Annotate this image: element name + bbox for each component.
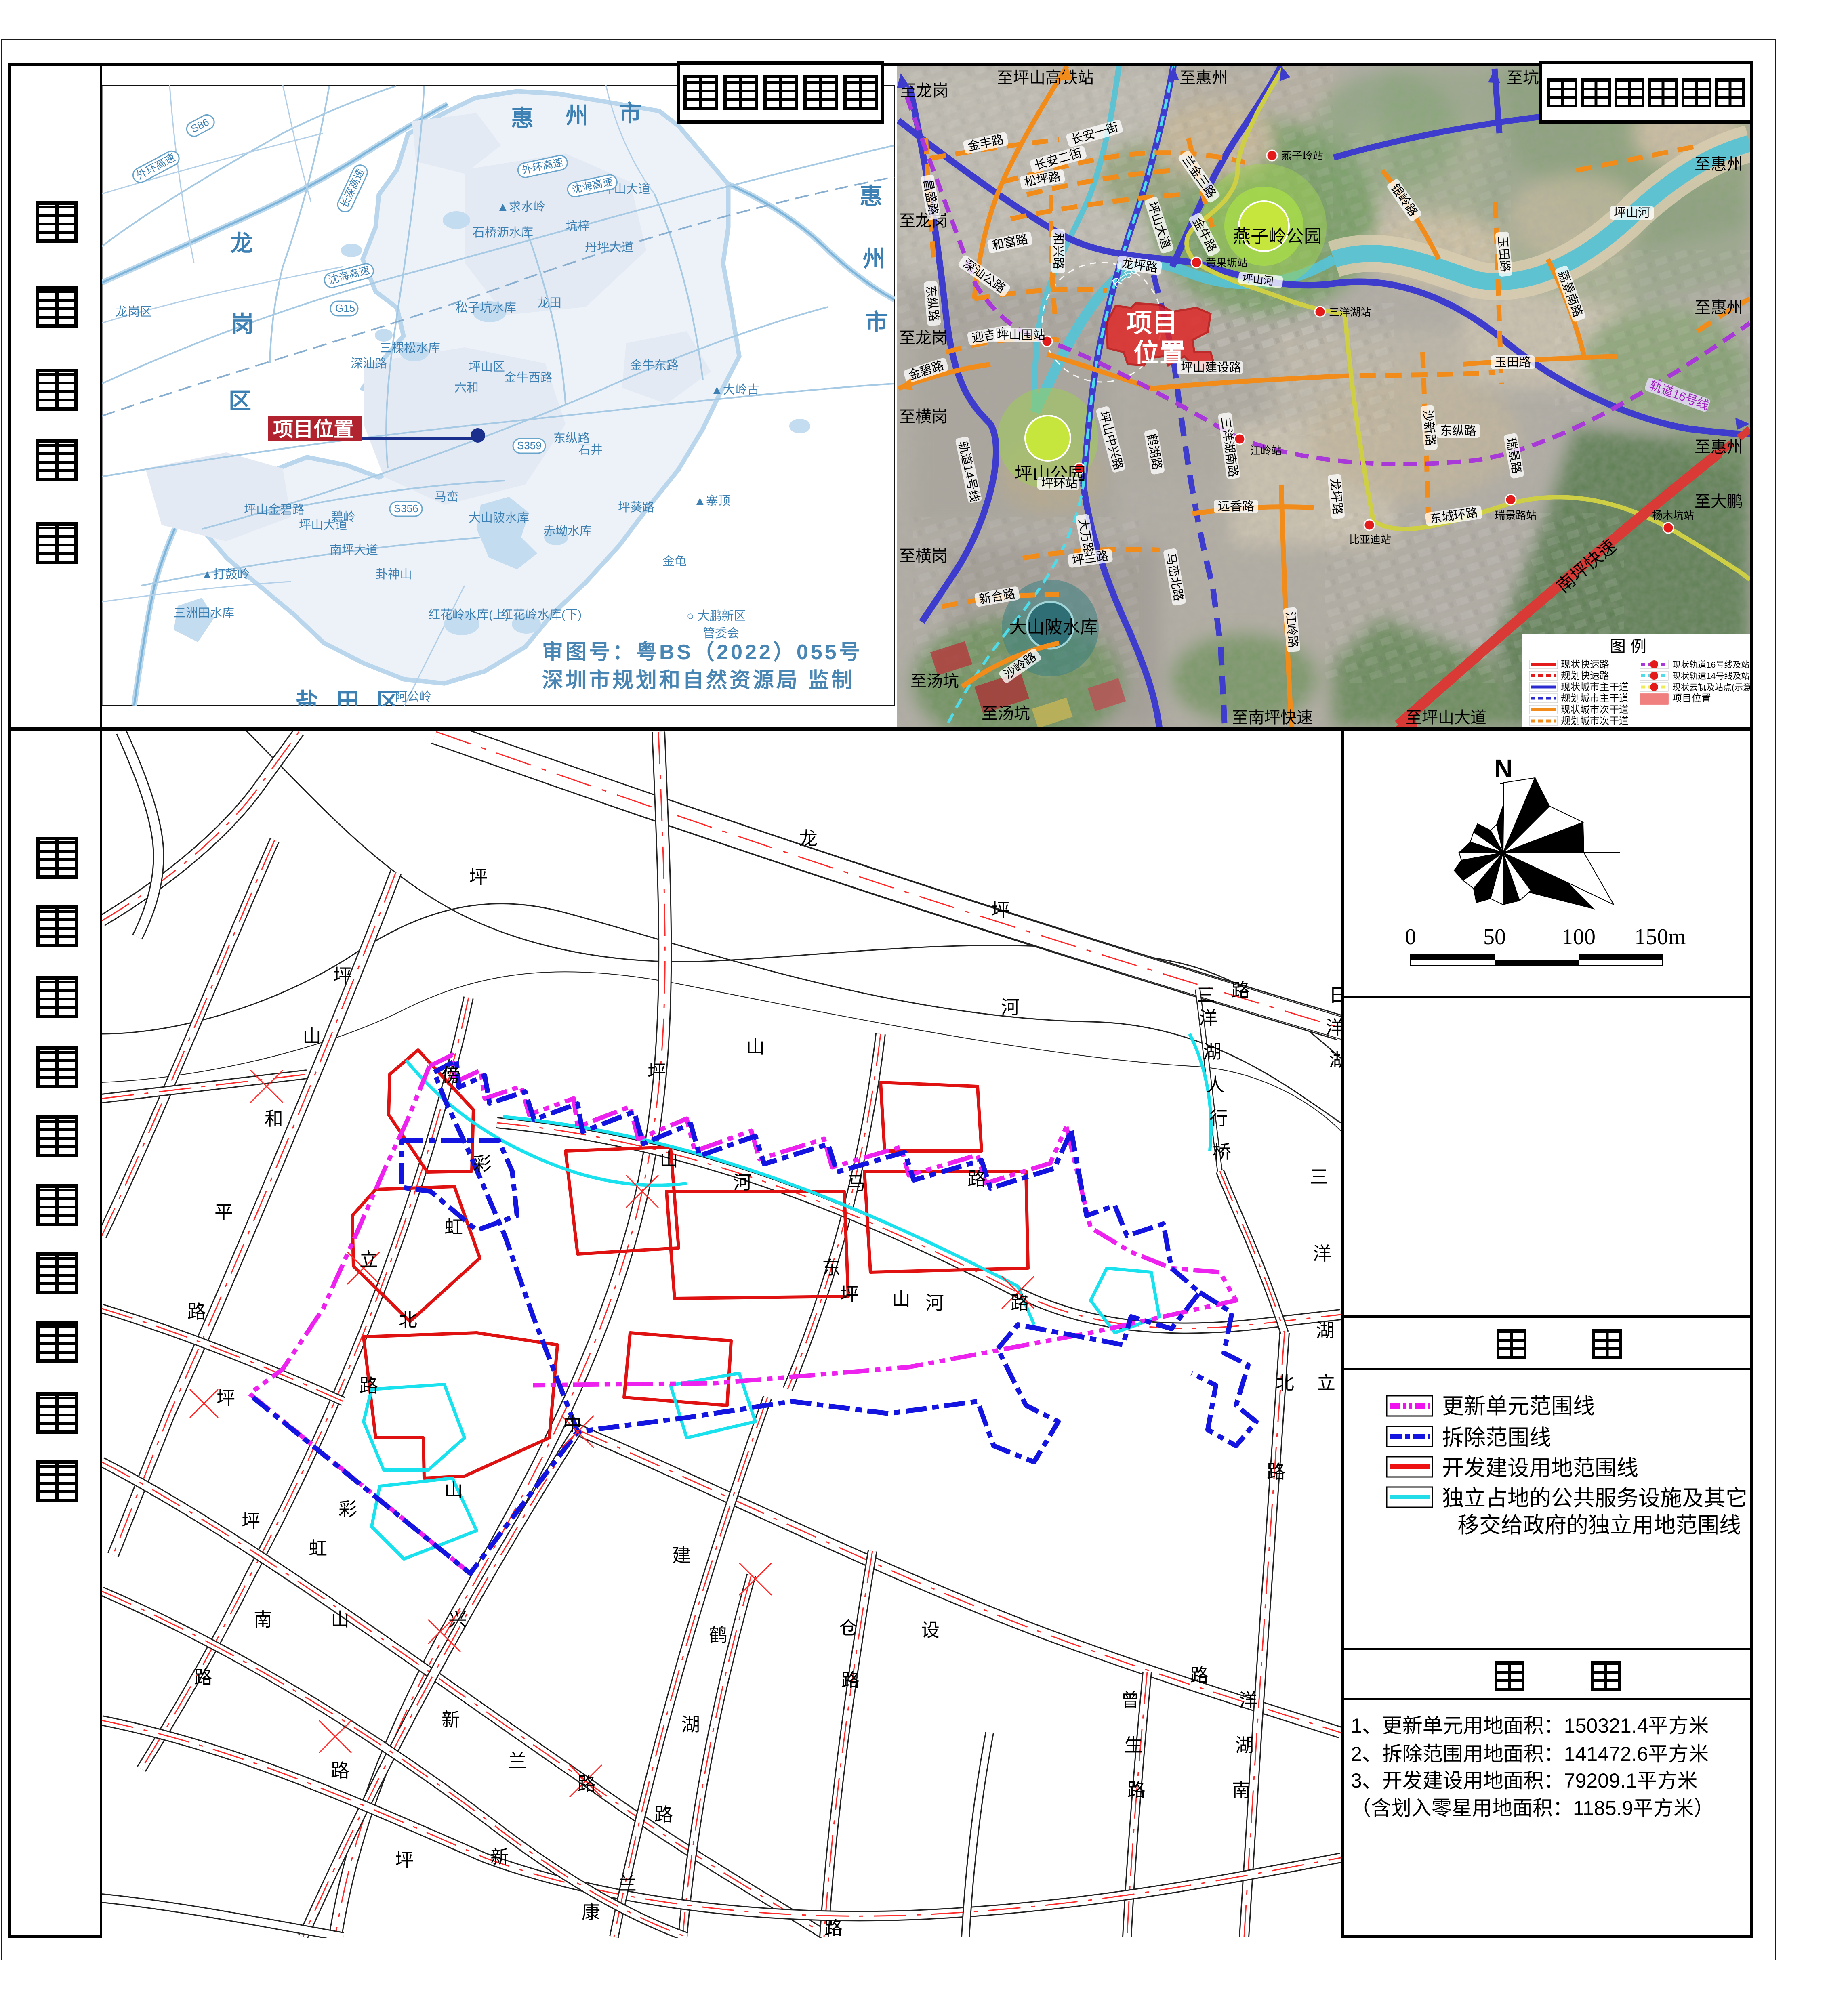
svg-text:▲打鼓岭: ▲打鼓岭 <box>201 568 250 581</box>
svg-text:州: 州 <box>863 246 885 271</box>
svg-text:东纵路: 东纵路 <box>553 432 590 445</box>
svg-text:市: 市 <box>865 309 888 335</box>
svg-text:项目位置: 项目位置 <box>273 418 354 441</box>
svg-text:坪: 坪 <box>242 1511 260 1532</box>
svg-text:路: 路 <box>331 1760 349 1781</box>
svg-text:田: 田 <box>336 689 359 706</box>
svg-text:湖: 湖 <box>681 1714 700 1735</box>
svg-text:规划快速路: 规划快速路 <box>1561 670 1609 681</box>
svg-text:坪: 坪 <box>469 867 488 888</box>
svg-text:虹: 虹 <box>309 1538 327 1559</box>
svg-text:S359: S359 <box>517 439 542 452</box>
svg-text:中: 中 <box>563 1414 582 1435</box>
svg-text:南坪大道: 南坪大道 <box>330 544 378 557</box>
svg-text:路: 路 <box>654 1804 673 1825</box>
svg-text:150m: 150m <box>1634 924 1686 949</box>
svg-text:三洋湖站: 三洋湖站 <box>1329 306 1371 318</box>
svg-text:审图号：粤BS（2022）055号: 审图号：粤BS（2022）055号 <box>542 641 862 664</box>
svg-text:三洲田水库: 三洲田水库 <box>174 607 234 620</box>
svg-text:▲寨顶: ▲寨顶 <box>694 494 730 508</box>
svg-text:东: 东 <box>822 1257 841 1278</box>
svg-text:南: 南 <box>1232 1779 1251 1800</box>
svg-text:兰: 兰 <box>508 1750 527 1771</box>
svg-text:路: 路 <box>967 1168 986 1189</box>
svg-text:1、更新单元用地面积：150321.4平方米: 1、更新单元用地面积：150321.4平方米 <box>1351 1714 1709 1737</box>
svg-text:大山陂水库: 大山陂水库 <box>1009 618 1098 637</box>
svg-text:▲大岭古: ▲大岭古 <box>711 383 759 397</box>
svg-text:盐: 盐 <box>296 689 318 706</box>
svg-text:三: 三 <box>1310 1166 1328 1187</box>
svg-text:比亚迪站: 比亚迪站 <box>1349 534 1391 546</box>
svg-text:瑞景路站: 瑞景路站 <box>1495 509 1537 521</box>
svg-text:更新单元范围线: 更新单元范围线 <box>1442 1394 1595 1418</box>
svg-text:杨木坑站: 杨木坑站 <box>1652 509 1694 521</box>
svg-text:坪山建设路: 坪山建设路 <box>1181 361 1241 374</box>
svg-text:至南坪快速: 至南坪快速 <box>1232 709 1313 727</box>
svg-text:河: 河 <box>925 1292 944 1313</box>
svg-text:马峦: 马峦 <box>434 490 458 504</box>
svg-text:规划城市次干道: 规划城市次干道 <box>1561 716 1629 727</box>
svg-text:红花岭水库(下): 红花岭水库(下) <box>501 608 582 622</box>
svg-text:规划城市主干道: 规划城市主干道 <box>1561 693 1629 704</box>
svg-text:兴: 兴 <box>448 1609 467 1630</box>
svg-text:路: 路 <box>1011 1292 1029 1313</box>
svg-text:山: 山 <box>660 1149 678 1170</box>
svg-text:坪: 坪 <box>840 1284 859 1305</box>
svg-text:石桥沥水库: 石桥沥水库 <box>473 226 533 239</box>
svg-text:现状云轨及站点(示意): 现状云轨及站点(示意) <box>1672 683 1750 692</box>
svg-text:赤坳水库: 赤坳水库 <box>543 525 592 538</box>
svg-text:路: 路 <box>194 1667 212 1688</box>
svg-text:移交给政府的独立用地范围线: 移交给政府的独立用地范围线 <box>1457 1513 1741 1538</box>
svg-text:龙: 龙 <box>230 231 253 256</box>
svg-text:北: 北 <box>399 1309 417 1330</box>
svg-text:玉田路: 玉田路 <box>1495 356 1531 369</box>
svg-text:坪: 坪 <box>333 965 352 986</box>
svg-text:丹坪大道: 丹坪大道 <box>585 241 633 254</box>
svg-text:现状城市次干道: 现状城市次干道 <box>1561 704 1629 715</box>
svg-text:燕子岭站: 燕子岭站 <box>1281 150 1323 162</box>
svg-text:曾: 曾 <box>1121 1690 1139 1711</box>
svg-text:（含划入零星用地面积：1185.9平方米）: （含划入零星用地面积：1185.9平方米） <box>1351 1797 1714 1819</box>
svg-text:2、拆除范围用地面积：141472.6平方米: 2、拆除范围用地面积：141472.6平方米 <box>1351 1743 1709 1765</box>
svg-text:路: 路 <box>577 1773 596 1794</box>
svg-text:路: 路 <box>841 1670 860 1691</box>
svg-text:人: 人 <box>1206 1074 1225 1095</box>
svg-text:日: 日 <box>1329 985 1341 1006</box>
svg-text:图 例: 图 例 <box>1610 638 1646 655</box>
svg-text:河: 河 <box>733 1172 752 1193</box>
svg-text:彩: 彩 <box>473 1153 492 1174</box>
svg-text:至坪山大道: 至坪山大道 <box>1406 709 1486 727</box>
svg-text:坪山河: 坪山河 <box>1614 206 1650 220</box>
svg-text:远香路: 远香路 <box>1218 500 1254 513</box>
svg-text:阿公岭: 阿公岭 <box>395 690 431 704</box>
svg-text:山: 山 <box>746 1036 765 1057</box>
svg-text:现状城市主干道: 现状城市主干道 <box>1561 682 1629 693</box>
svg-text:路: 路 <box>1127 1779 1146 1800</box>
svg-text:康: 康 <box>582 1901 600 1922</box>
svg-text:黄果坜站: 黄果坜站 <box>1206 257 1248 269</box>
svg-text:路: 路 <box>824 1918 843 1938</box>
svg-text:湖: 湖 <box>1203 1041 1221 1062</box>
svg-text:开发建设用地范围线: 开发建设用地范围线 <box>1442 1456 1638 1480</box>
svg-text:三: 三 <box>1196 985 1215 1006</box>
svg-text:和兴路: 和兴路 <box>1051 233 1065 269</box>
svg-text:至汤坑: 至汤坑 <box>910 672 959 690</box>
svg-text:傍: 傍 <box>442 1065 460 1086</box>
svg-text:0: 0 <box>1405 924 1416 949</box>
svg-text:湖: 湖 <box>1235 1735 1254 1756</box>
svg-text:至惠州: 至惠州 <box>1179 69 1228 87</box>
svg-text:至横岗: 至横岗 <box>899 408 948 426</box>
svg-text:金牛西路: 金牛西路 <box>504 371 553 384</box>
svg-text:行: 行 <box>1209 1108 1228 1129</box>
svg-text:洋: 洋 <box>1199 1008 1217 1029</box>
svg-text:州: 州 <box>566 103 588 128</box>
svg-text:湖: 湖 <box>1329 1049 1341 1070</box>
svg-text:市: 市 <box>619 101 641 126</box>
svg-text:坪: 坪 <box>648 1061 666 1082</box>
svg-text:设: 设 <box>921 1620 940 1641</box>
svg-text:至惠州: 至惠州 <box>1695 299 1743 317</box>
svg-text:现状轨道14号线及站点(示意): 现状轨道14号线及站点(示意) <box>1672 672 1750 681</box>
svg-text:S356: S356 <box>394 502 418 515</box>
svg-text:南: 南 <box>254 1609 272 1630</box>
svg-text:石井: 石井 <box>578 443 603 457</box>
svg-text:龙田: 龙田 <box>537 296 561 310</box>
svg-text:项目位置: 项目位置 <box>1672 693 1711 704</box>
svg-text:北: 北 <box>1276 1372 1294 1393</box>
svg-text:生: 生 <box>1124 1735 1143 1756</box>
svg-text:至横岗: 至横岗 <box>899 547 948 565</box>
svg-text:洋: 洋 <box>1239 1690 1257 1711</box>
svg-text:桥: 桥 <box>1213 1141 1231 1162</box>
svg-text:马: 马 <box>847 1173 866 1194</box>
svg-text:至惠州: 至惠州 <box>1695 438 1743 456</box>
svg-text:三棵松水库: 三棵松水库 <box>380 342 440 355</box>
svg-text:兰: 兰 <box>618 1873 637 1894</box>
svg-text:现状快速路: 现状快速路 <box>1561 659 1609 670</box>
svg-text:山: 山 <box>303 1026 321 1047</box>
svg-text:独立占地的公共服务设施及其它: 独立占地的公共服务设施及其它 <box>1442 1486 1747 1510</box>
svg-text:至坪山高铁站: 至坪山高铁站 <box>997 69 1094 87</box>
svg-text:坪山区: 坪山区 <box>469 360 505 374</box>
svg-text:山: 山 <box>331 1609 349 1630</box>
svg-text:100: 100 <box>1562 924 1596 949</box>
svg-text:山: 山 <box>892 1289 910 1310</box>
svg-text:至龙岗: 至龙岗 <box>899 329 948 347</box>
svg-text:N: N <box>1494 754 1513 783</box>
svg-text:拆除范围线: 拆除范围线 <box>1442 1426 1551 1450</box>
svg-text:坪: 坪 <box>991 900 1010 921</box>
svg-text:洋: 洋 <box>1326 1017 1341 1038</box>
svg-text:立: 立 <box>1317 1372 1335 1393</box>
svg-text:深圳市规划和自然资源局 监制: 深圳市规划和自然资源局 监制 <box>542 669 855 692</box>
svg-text:金牛东路: 金牛东路 <box>630 359 679 372</box>
svg-text:项目: 项目 <box>1126 309 1178 338</box>
svg-text:○ 大鹏新区: ○ 大鹏新区 <box>687 609 746 623</box>
svg-text:路: 路 <box>1231 980 1250 1001</box>
svg-text:坪山大道: 坪山大道 <box>299 519 347 532</box>
svg-text:3、开发建设用地面积：79209.1平方米: 3、开发建设用地面积：79209.1平方米 <box>1351 1769 1698 1792</box>
svg-text:惠: 惠 <box>511 105 534 131</box>
svg-text:现状轨道16号线及站点(示意): 现状轨道16号线及站点(示意) <box>1672 660 1750 670</box>
svg-text:深汕路: 深汕路 <box>351 357 387 370</box>
svg-text:路: 路 <box>187 1301 206 1322</box>
svg-text:红花岭水库(上): 红花岭水库(上) <box>428 608 509 622</box>
svg-text:50: 50 <box>1483 924 1506 949</box>
svg-text:区: 区 <box>229 388 251 414</box>
svg-text:G15: G15 <box>335 302 355 314</box>
svg-text:江岭站: 江岭站 <box>1250 445 1282 457</box>
svg-text:立: 立 <box>360 1249 378 1270</box>
svg-text:至大鹏: 至大鹏 <box>1695 493 1743 510</box>
svg-text:六和: 六和 <box>454 381 479 395</box>
svg-text:坪: 坪 <box>395 1850 414 1871</box>
svg-text:金龟: 金龟 <box>662 555 687 568</box>
svg-text:湖: 湖 <box>1316 1320 1335 1341</box>
svg-text:坪环站: 坪环站 <box>1041 477 1078 490</box>
svg-text:卦神山: 卦神山 <box>376 568 412 581</box>
svg-text:彩: 彩 <box>338 1499 357 1520</box>
svg-text:大山陂水库: 大山陂水库 <box>469 511 529 525</box>
svg-text:新: 新 <box>442 1709 460 1730</box>
svg-text:龙: 龙 <box>799 828 818 849</box>
svg-text:坪山围站: 坪山围站 <box>997 329 1045 342</box>
svg-text:仓: 仓 <box>839 1617 858 1638</box>
svg-text:燕子岭公园: 燕子岭公园 <box>1233 227 1322 246</box>
svg-text:东纵路: 东纵路 <box>1440 424 1476 438</box>
svg-text:至汤坑: 至汤坑 <box>982 705 1030 723</box>
svg-text:路: 路 <box>1267 1461 1285 1482</box>
svg-text:坑梓: 坑梓 <box>566 220 590 233</box>
svg-text:至惠州: 至惠州 <box>1695 155 1743 173</box>
svg-text:龙岗区: 龙岗区 <box>116 305 152 319</box>
svg-text:坪山金碧路: 坪山金碧路 <box>244 503 305 517</box>
svg-text:鹤: 鹤 <box>709 1624 727 1645</box>
svg-text:和: 和 <box>265 1108 283 1129</box>
svg-text:坪葵路: 坪葵路 <box>618 501 654 514</box>
svg-text:路: 路 <box>1190 1665 1209 1686</box>
svg-text:平: 平 <box>214 1202 233 1223</box>
svg-text:路: 路 <box>360 1375 378 1396</box>
svg-text:洋: 洋 <box>1313 1243 1331 1264</box>
svg-text:管委会: 管委会 <box>703 627 739 640</box>
svg-text:河: 河 <box>1001 997 1020 1018</box>
svg-text:虹: 虹 <box>444 1216 463 1237</box>
svg-text:惠: 惠 <box>860 183 882 209</box>
svg-text:新: 新 <box>490 1846 509 1867</box>
svg-text:岗: 岗 <box>231 311 254 337</box>
svg-text:建: 建 <box>672 1545 691 1566</box>
svg-text:松子坑水库: 松子坑水库 <box>456 301 516 315</box>
svg-text:▲求水岭: ▲求水岭 <box>497 200 545 214</box>
svg-text:坪: 坪 <box>217 1388 235 1409</box>
svg-text:山: 山 <box>444 1479 463 1500</box>
